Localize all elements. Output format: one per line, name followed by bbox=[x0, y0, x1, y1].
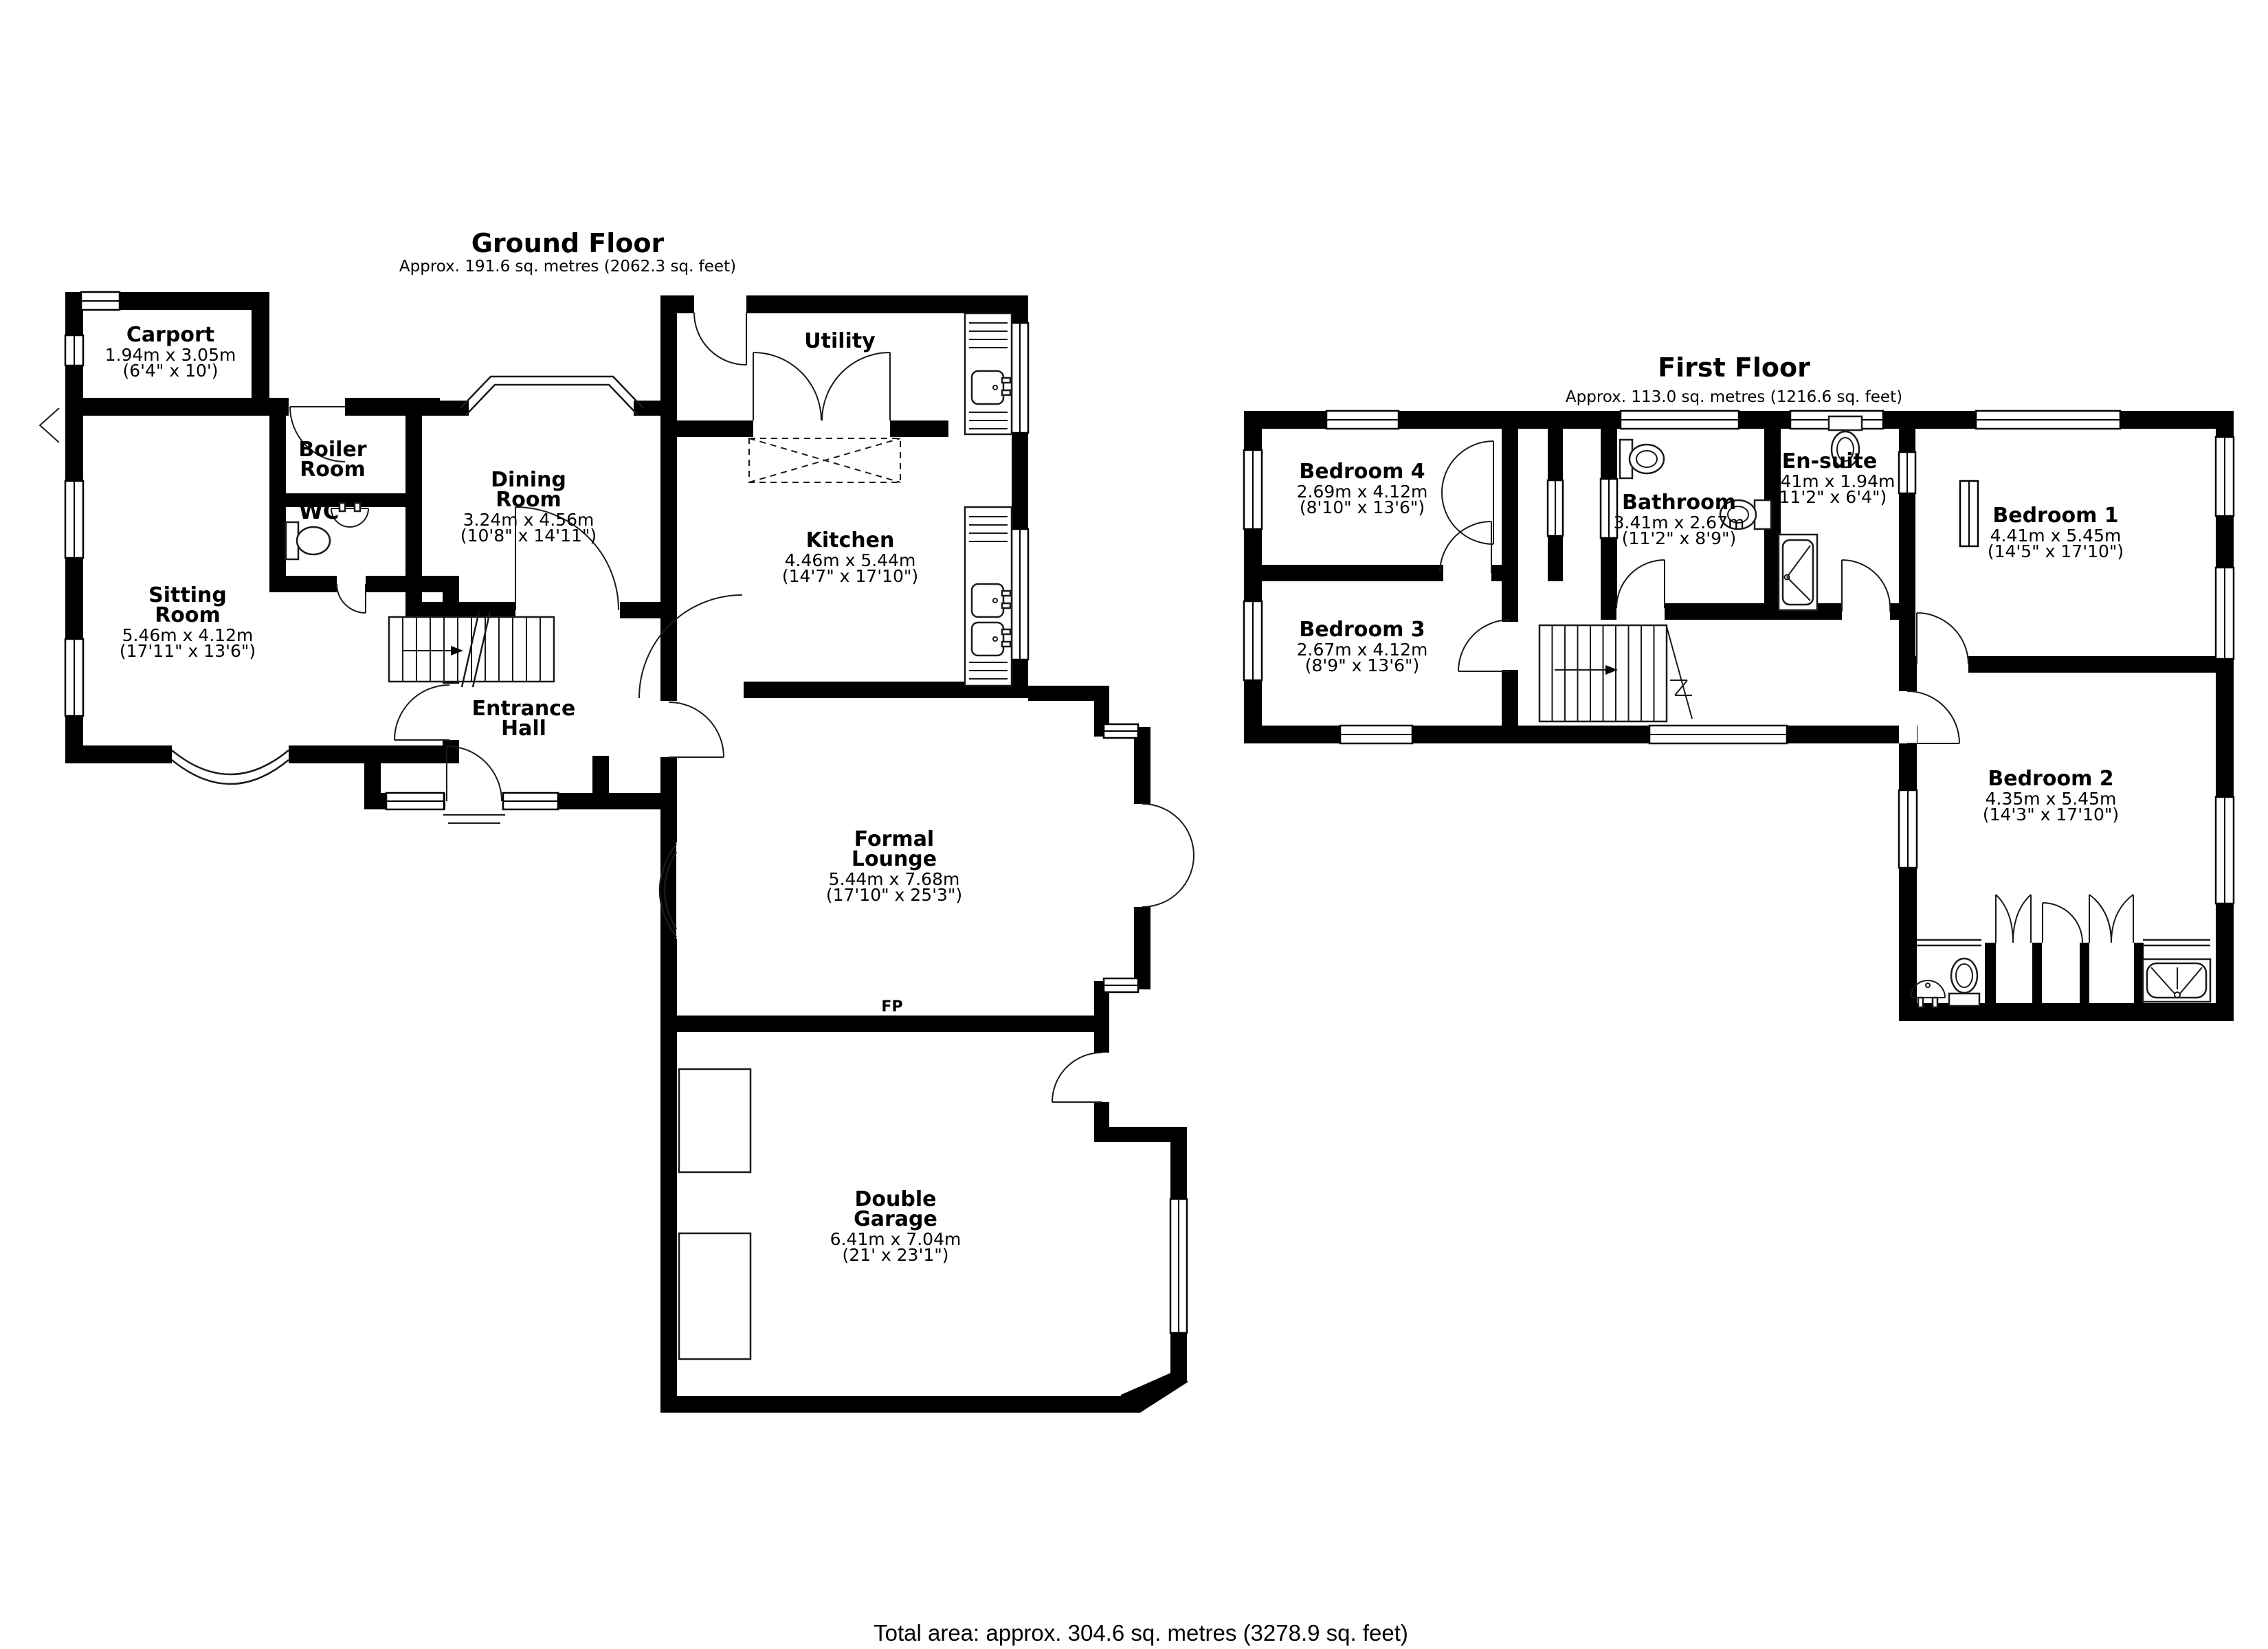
doorway-gap bbox=[1842, 603, 1890, 620]
room-label-wc: WC bbox=[299, 498, 340, 524]
toilet-icon bbox=[1829, 416, 1862, 430]
room-label-kitchen: Kitchen4.46m x 5.44m(14'7" x 17'10") bbox=[782, 528, 918, 586]
door-swing-icon bbox=[394, 685, 449, 740]
door-swing-icon bbox=[1142, 804, 1194, 855]
room-label-sitting-room: SittingRoom5.46m x 4.12m(17'11" x 13'6") bbox=[120, 583, 256, 661]
door-swing-icon bbox=[2111, 895, 2133, 943]
door-swing-icon bbox=[2089, 895, 2111, 943]
door-swing-icon bbox=[1442, 493, 1493, 544]
wall-segment bbox=[1899, 411, 1915, 656]
wall-segment bbox=[1502, 411, 1518, 581]
wall-segment bbox=[676, 1016, 1109, 1032]
garage-angled-wall bbox=[1121, 1372, 1188, 1413]
room-label-utility: Utility bbox=[804, 329, 876, 353]
room-label-bedroom-1: Bedroom 14.41m x 5.45m(14'5" x 17'10") bbox=[1988, 504, 2124, 561]
room-label-double-garage: DoubleGarage6.41m x 7.04m(21' x 23'1") bbox=[830, 1187, 961, 1265]
sink-icon bbox=[972, 622, 1003, 655]
sink-tap-icon bbox=[1002, 642, 1010, 647]
floorplan-page: Carport1.94m x 3.05m(6'4" x 10')BoilerRo… bbox=[0, 0, 2268, 1649]
door-swing-icon bbox=[1442, 441, 1493, 493]
step-lines bbox=[40, 408, 59, 442]
sink-tap-icon bbox=[1002, 603, 1010, 608]
room-label-en-suite: En-suite3.41m x 1.94m(11'2" x 6'4") bbox=[1764, 449, 1895, 507]
room-label-boiler-room: BoilerRoom bbox=[298, 438, 366, 482]
sink-tap-icon bbox=[1002, 591, 1010, 596]
doorway-gap bbox=[1917, 656, 1968, 673]
door-swing-icon bbox=[2013, 895, 2031, 943]
sink-tap-icon bbox=[1002, 390, 1010, 395]
wall-segment bbox=[660, 697, 677, 1412]
sink-tap-icon bbox=[355, 503, 360, 511]
doorway-gap bbox=[1443, 565, 1491, 581]
wall-segment bbox=[592, 756, 609, 809]
garage-storage-outline bbox=[679, 1069, 751, 1172]
room-label-bathroom: Bathroom3.41m x 2.67m(11'2" x 8'9") bbox=[1614, 491, 1745, 548]
doorway-gap bbox=[660, 701, 677, 757]
floorplan-drawing: Carport1.94m x 3.05m(6'4" x 10')BoilerRo… bbox=[0, 0, 2268, 1649]
doorway-gap bbox=[515, 602, 620, 618]
garage-storage-outline bbox=[679, 1233, 751, 1359]
doorway-gap bbox=[1899, 691, 1917, 743]
wall-segment bbox=[405, 398, 422, 618]
door-swing-icon bbox=[822, 352, 890, 420]
ground-floor-subtitle: Approx. 191.6 sq. metres (2062.3 sq. fee… bbox=[399, 258, 736, 276]
wall-segment bbox=[65, 398, 440, 416]
wall-segment bbox=[2080, 943, 2089, 1006]
doorway-gap bbox=[1502, 622, 1518, 670]
sink-drain-icon bbox=[1926, 983, 1930, 987]
door-swing-icon bbox=[2043, 903, 2082, 943]
sink-bracket bbox=[1755, 500, 1771, 529]
room-label-carport: Carport1.94m x 3.05m(6'4" x 10') bbox=[105, 323, 236, 381]
sink-tap-icon bbox=[1002, 378, 1010, 383]
toilet-base bbox=[1949, 994, 1979, 1006]
wall-segment bbox=[660, 295, 677, 697]
sink-tap-icon bbox=[340, 503, 345, 511]
wall-segment bbox=[1985, 943, 1996, 1006]
wall-segment bbox=[1028, 686, 1109, 701]
wall-segment bbox=[252, 292, 269, 416]
room-label-entrance-hall: EntranceHall bbox=[472, 697, 576, 741]
doorway-gap bbox=[172, 745, 289, 763]
doorway-gap bbox=[1094, 1053, 1109, 1102]
first-floor-title: First Floor bbox=[1658, 352, 1810, 383]
wall-segment bbox=[660, 1396, 1121, 1413]
wall-segment bbox=[1134, 907, 1150, 989]
door-swing-icon bbox=[1142, 855, 1194, 907]
room-label-dining-room: DiningRoom3.24m x 4.56m(10'8" x 14'11") bbox=[460, 468, 597, 546]
total-area-text: Total area: approx. 304.6 sq. metres (32… bbox=[874, 1620, 1408, 1646]
door-swing-icon bbox=[753, 352, 821, 420]
room-label-formal-lounge: FormalLounge5.44m x 7.68m(17'10" x 25'3"… bbox=[826, 827, 962, 905]
room-label-bedroom-3: Bedroom 32.67m x 4.12m(8'9" x 13'6") bbox=[1297, 618, 1428, 675]
toilet-icon bbox=[297, 527, 330, 554]
room-label-fp: FP bbox=[881, 998, 902, 1016]
stair-detail bbox=[1667, 627, 1692, 719]
wall-segment bbox=[2032, 943, 2042, 1006]
sink-tap-icon bbox=[1002, 629, 1010, 634]
first-floor-subtitle: Approx. 113.0 sq. metres (1216.6 sq. fee… bbox=[1566, 388, 1902, 406]
shower-tray bbox=[1783, 540, 1813, 605]
sink-tap-icon bbox=[1918, 998, 1923, 1007]
bay-window-icon bbox=[466, 385, 638, 415]
sink-icon bbox=[972, 584, 1003, 617]
doorway-gap bbox=[443, 684, 459, 740]
room-label-bedroom-4: Bedroom 42.69m x 4.12m(8'10" x 13'6") bbox=[1297, 460, 1428, 517]
room-label-bedroom-2: Bedroom 24.35m x 5.45m(14'3" x 17'10") bbox=[1983, 767, 2119, 824]
toilet-icon bbox=[1630, 445, 1664, 473]
ground-floor-title: Ground Floor bbox=[471, 228, 665, 258]
doorway-gap bbox=[694, 295, 746, 313]
doorway-gap bbox=[676, 842, 693, 939]
door-swing-icon bbox=[694, 313, 746, 365]
door-swing-icon bbox=[1996, 895, 2013, 943]
doorway-gap bbox=[445, 793, 503, 809]
doorway-gap bbox=[337, 576, 366, 592]
wall-segment bbox=[405, 401, 469, 416]
door-swing-icon bbox=[1616, 560, 1665, 608]
doorway-gap bbox=[753, 420, 890, 437]
sink-tap-icon bbox=[1933, 998, 1937, 1007]
doorway-gap bbox=[1616, 603, 1665, 620]
sink-icon bbox=[972, 371, 1003, 404]
